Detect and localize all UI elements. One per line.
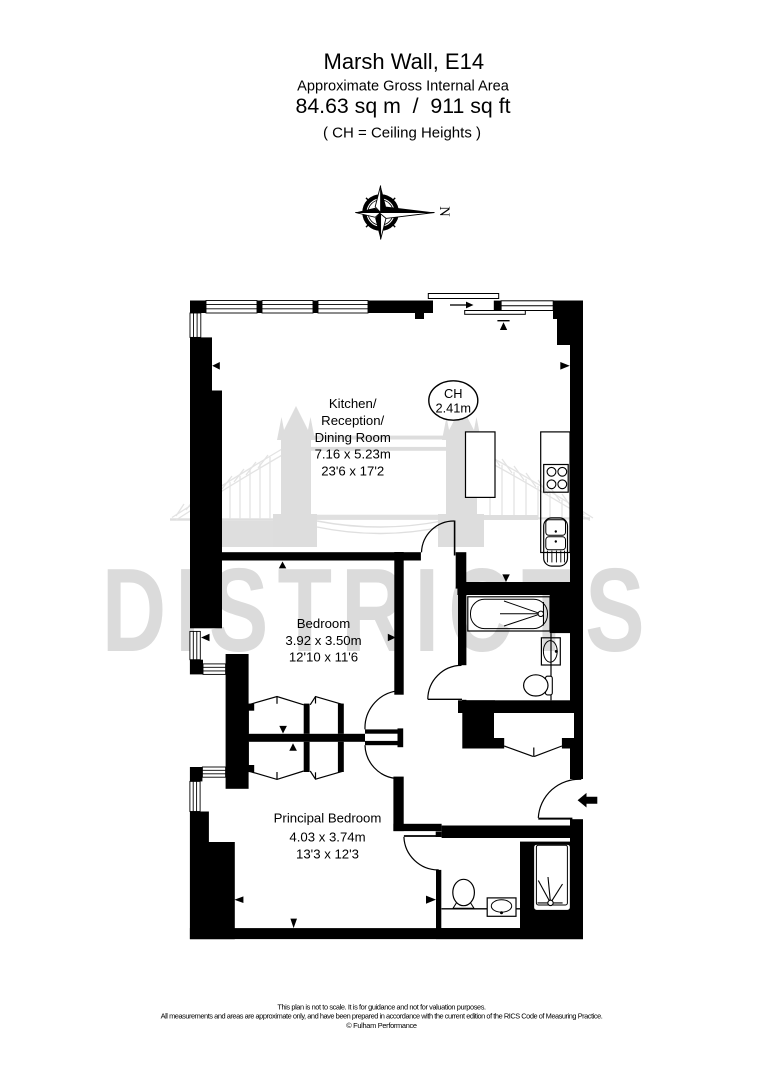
svg-text:CH: CH (444, 386, 462, 401)
svg-text:12'10 x 11'6: 12'10 x 11'6 (289, 650, 358, 665)
svg-text:Principal Bedroom: Principal Bedroom (274, 811, 382, 826)
svg-text:© Fulham Performance: © Fulham Performance (346, 1021, 417, 1030)
svg-text:Marsh Wall, E14: Marsh Wall, E14 (324, 49, 485, 74)
svg-text:N: N (436, 206, 452, 217)
svg-text:Reception/: Reception/ (321, 413, 384, 428)
svg-text:Kitchen/: Kitchen/ (329, 396, 377, 411)
svg-text:2.41m: 2.41m (436, 401, 472, 416)
svg-text:7.16 x 5.23m: 7.16 x 5.23m (315, 447, 391, 462)
svg-text:Dining Room: Dining Room (315, 430, 391, 445)
svg-text:84.63 sq m / 911 sq ft: 84.63 sq m / 911 sq ft (295, 94, 510, 118)
svg-text:13'3 x 12'3: 13'3 x 12'3 (296, 847, 359, 862)
svg-text:Approximate Gross Internal Are: Approximate Gross Internal Area (297, 79, 510, 95)
svg-text:4.03 x 3.74m: 4.03 x 3.74m (289, 829, 365, 844)
svg-text:Bedroom: Bedroom (297, 616, 351, 631)
svg-text:This plan is not to scale. It: This plan is not to scale. It is for gui… (277, 1002, 486, 1011)
svg-text:23'6 x 17'2: 23'6 x 17'2 (321, 464, 384, 479)
svg-text:( CH = Ceiling Heights ): ( CH = Ceiling Heights ) (323, 124, 481, 141)
svg-text:All measurements and areas are: All measurements and areas are approxima… (161, 1012, 603, 1021)
svg-text:3.92 x 3.50m: 3.92 x 3.50m (285, 633, 361, 648)
